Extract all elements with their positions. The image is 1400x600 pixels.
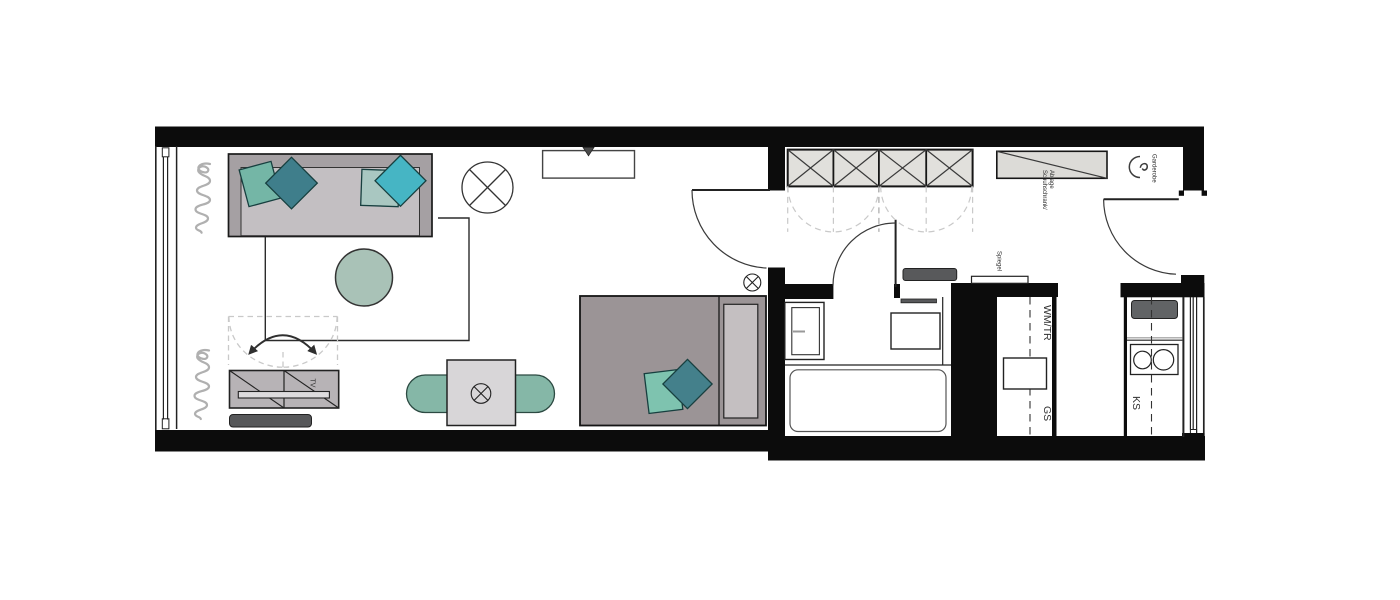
- svg-text:Ablage: Ablage: [1048, 170, 1054, 189]
- svg-text:GS: GS: [1041, 406, 1053, 421]
- svg-text:TV: TV: [309, 379, 316, 388]
- svg-text:Garderobe: Garderobe: [1151, 154, 1157, 183]
- svg-text:Spiegel: Spiegel: [996, 251, 1002, 271]
- svg-text:WM/TR: WM/TR: [1041, 305, 1053, 341]
- svg-text:KS: KS: [1130, 396, 1142, 410]
- svg-text:Schuhschrank/: Schuhschrank/: [1041, 170, 1047, 210]
